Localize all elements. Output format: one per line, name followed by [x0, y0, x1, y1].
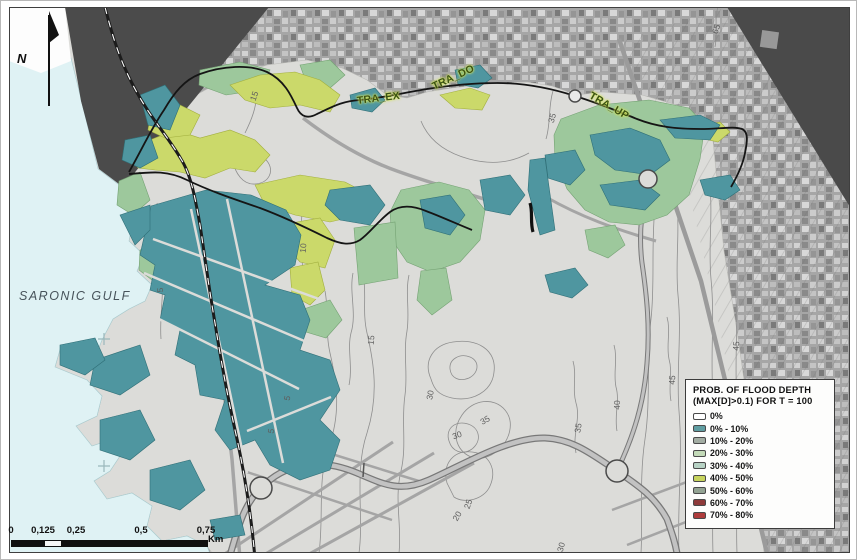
flood-map-figure: N SARONIC GULF TRA_EXTRA_DOTRA_UP 555101… [0, 0, 857, 560]
tick-mark [363, 463, 364, 477]
map-canvas [1, 1, 857, 560]
margin-corner [9, 7, 71, 73]
pier-block [760, 30, 779, 49]
